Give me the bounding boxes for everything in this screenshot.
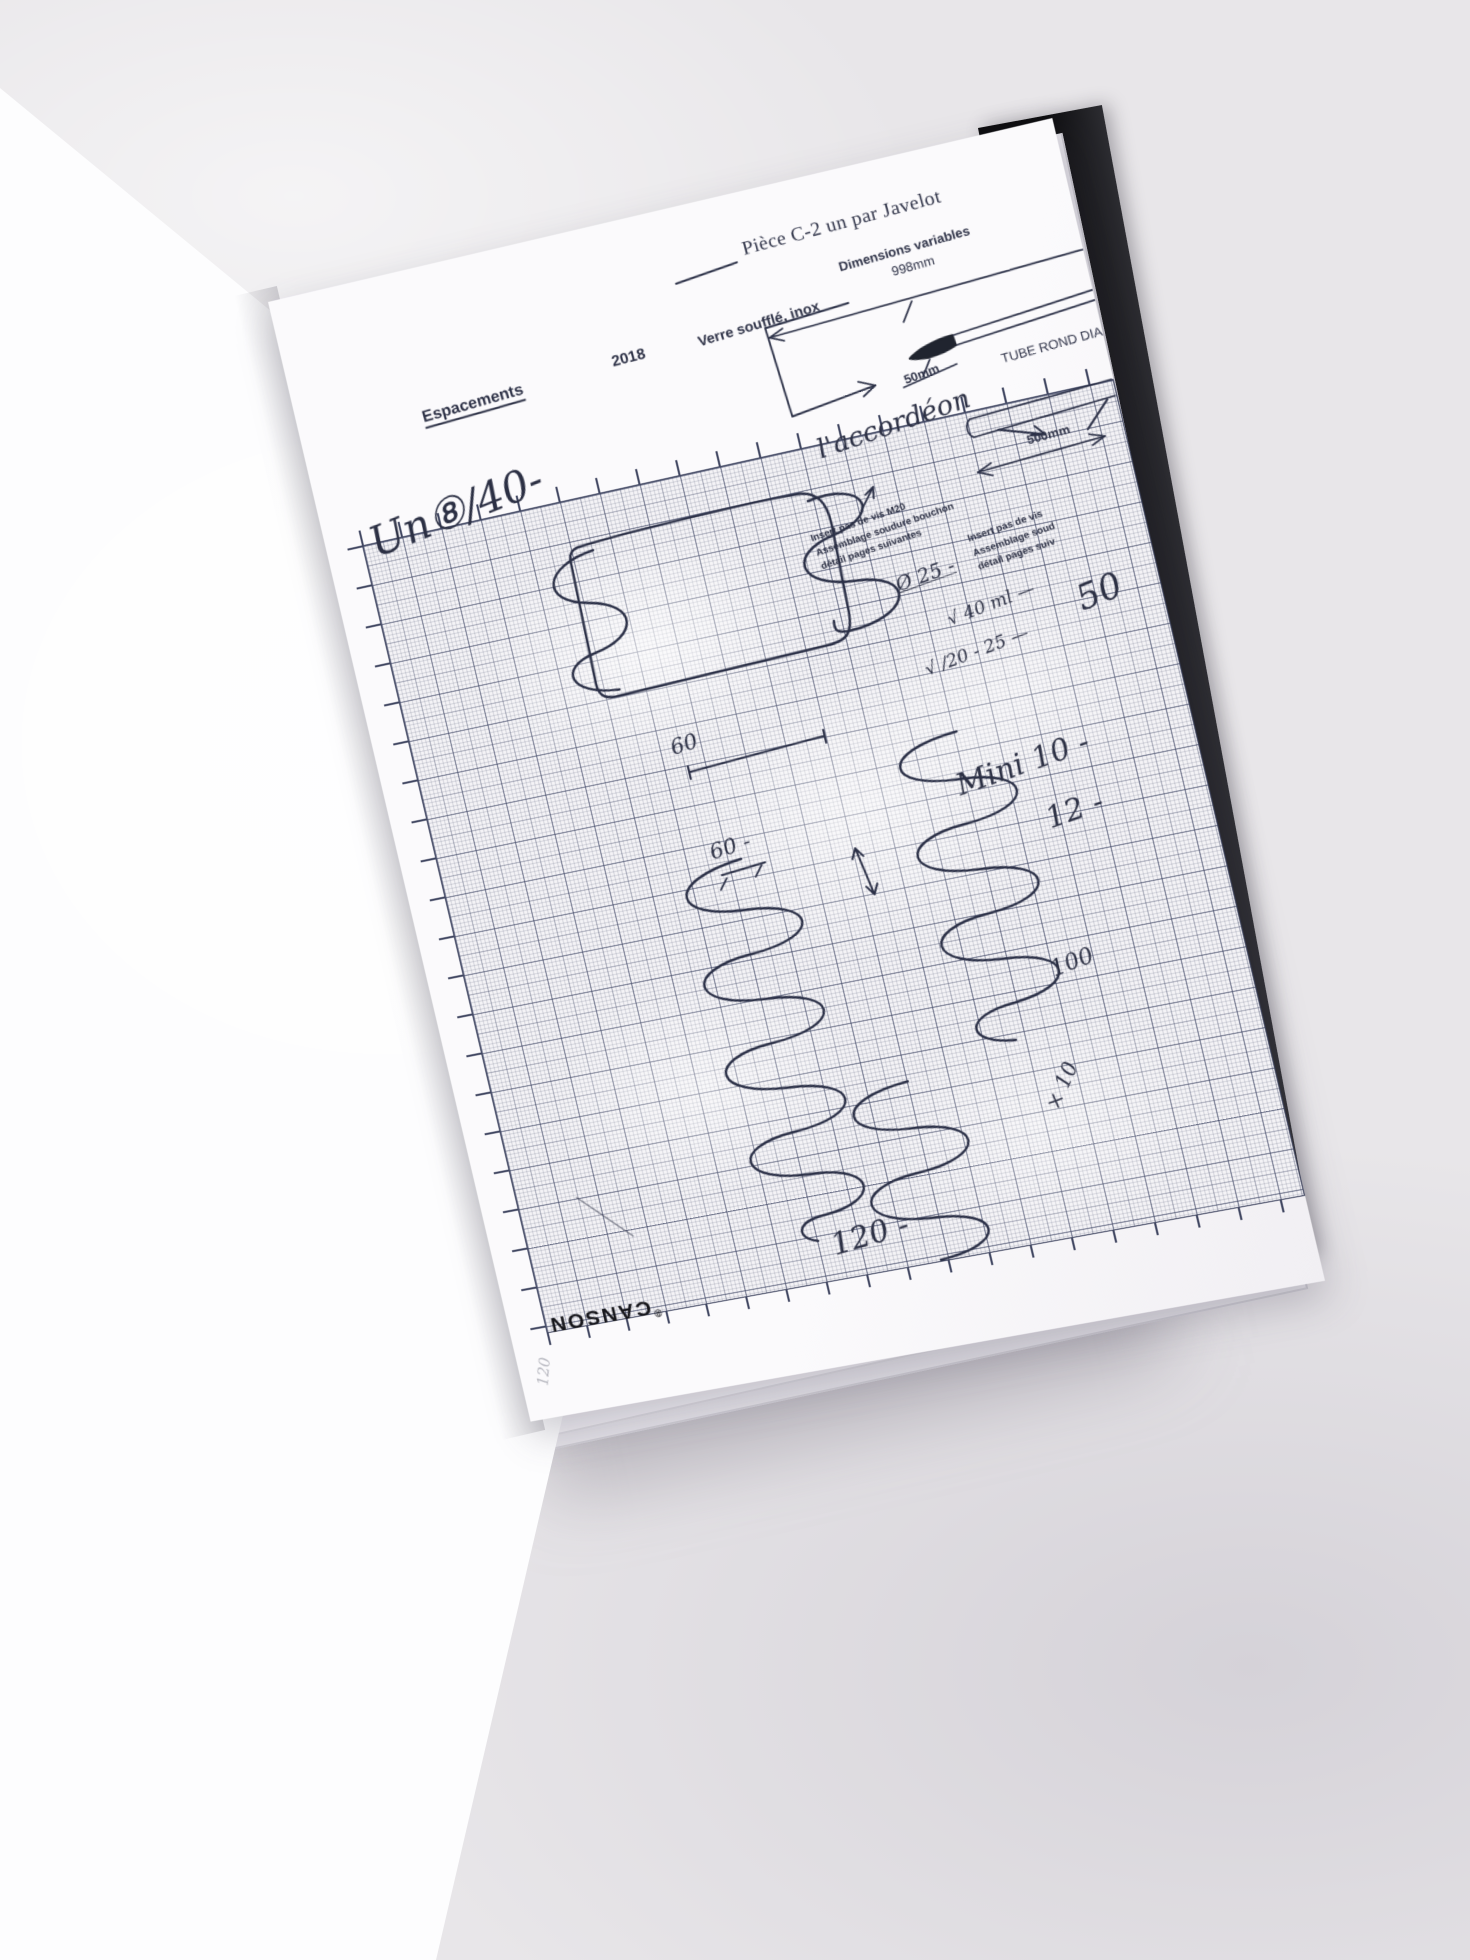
page-number: 120 [533, 1356, 554, 1387]
